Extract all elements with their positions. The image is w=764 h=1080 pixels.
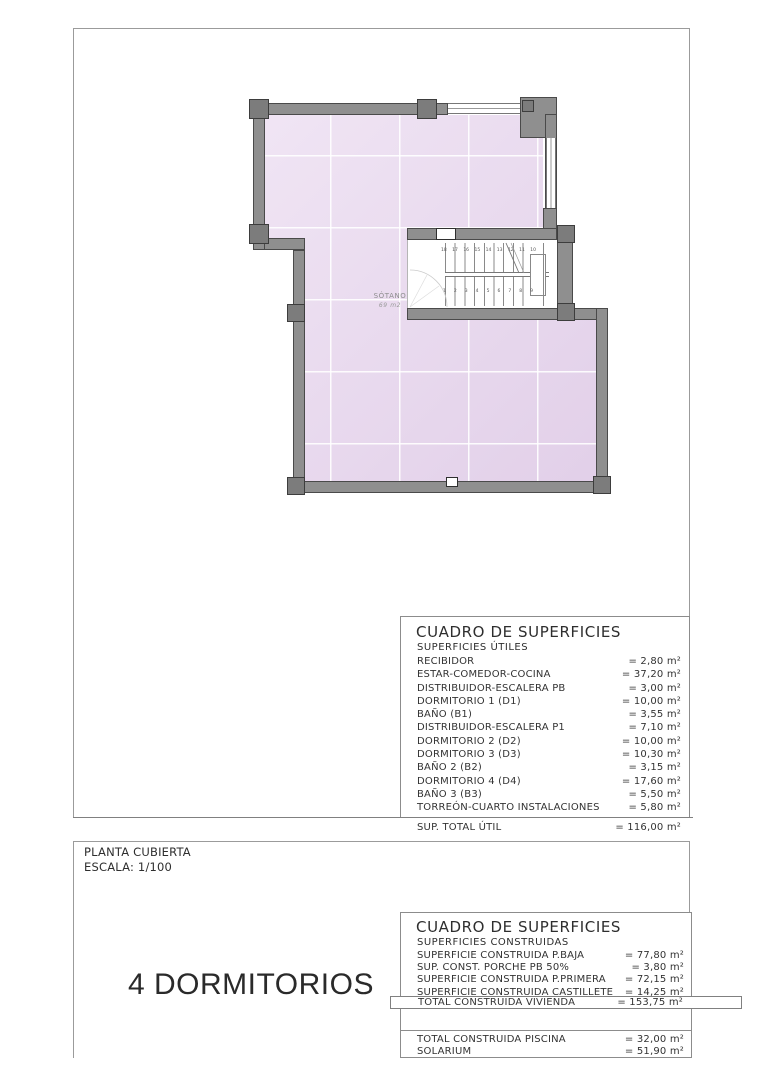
- row-label: SUP. CONST. PORCHE PB 50%: [417, 962, 569, 974]
- window: [546, 138, 556, 208]
- row-label: SOLARIUM: [417, 1046, 471, 1058]
- floor-plan: 18 17 16 15 14 13 12 11 10 1 2 3 4 5 6 7…: [0, 0, 764, 560]
- total-row: TOTAL CONSTRUIDA VIVIENDA = 153,75 m²: [391, 997, 741, 1008]
- row-label: ESTAR-COMEDOR-COCINA: [417, 668, 551, 681]
- row-label: BAÑO (B1): [417, 708, 472, 721]
- column: [249, 224, 269, 244]
- total-row: SUP. TOTAL ÚTIL = 116,00 m²: [73, 818, 693, 836]
- row-label: DORMITORIO 1 (D1): [417, 695, 521, 708]
- column: [557, 225, 575, 243]
- room-label: SÓTANO 69 m2: [355, 292, 425, 310]
- row-value: = 51,90 m²: [625, 1046, 684, 1058]
- row-value: = 3,00 m²: [628, 682, 681, 695]
- table-row: BAÑO (B1)= 3,55 m²: [417, 708, 681, 721]
- total-value: = 116,00 m²: [615, 822, 681, 833]
- table-row: TORREÓN-CUARTO INSTALACIONES= 5,80 m²: [417, 801, 681, 814]
- table-row: TOTAL CONSTRUIDA PISCINA= 32,00 m²: [417, 1034, 684, 1046]
- room-name: SÓTANO: [355, 292, 425, 301]
- row-label: DISTRIBUIDOR-ESCALERA PB: [417, 682, 566, 695]
- total-value: = 153,75 m²: [617, 997, 683, 1008]
- plan-name: PLANTA CUBIERTA: [84, 845, 191, 860]
- row-value: = 17,60 m²: [622, 775, 681, 788]
- table-row: BAÑO 3 (B3)= 5,50 m²: [417, 788, 681, 801]
- table-row: ESTAR-COMEDOR-COCINA= 37,20 m²: [417, 668, 681, 681]
- door-marker: [446, 477, 458, 487]
- wall-segment: [407, 308, 608, 320]
- table-title: CUADRO DE SUPERFICIES: [416, 919, 621, 936]
- row-label: SUPERFICIE CONSTRUIDA P.BAJA: [417, 950, 584, 962]
- row-value: = 32,00 m²: [625, 1034, 684, 1046]
- table-rows: SUPERFICIE CONSTRUIDA P.BAJA= 77,80 m² S…: [417, 950, 684, 999]
- row-value: = 2,80 m²: [628, 655, 681, 668]
- table-row: DISTRIBUIDOR-ESCALERA PB= 3,00 m²: [417, 682, 681, 695]
- table-row: DORMITORIO 2 (D2)= 10,00 m²: [417, 735, 681, 748]
- row-value: = 10,30 m²: [622, 748, 681, 761]
- table-divider: [400, 1030, 692, 1031]
- wall-segment: [407, 228, 557, 240]
- row-value: = 72,15 m²: [625, 974, 684, 986]
- column: [417, 99, 437, 119]
- row-label: DORMITORIO 3 (D3): [417, 748, 521, 761]
- table-row: SUP. CONST. PORCHE PB 50%= 3,80 m²: [417, 962, 684, 974]
- row-label: BAÑO 3 (B3): [417, 788, 482, 801]
- plan-scale: ESCALA: 1/100: [84, 860, 191, 875]
- row-value: = 10,00 m²: [622, 735, 681, 748]
- table-row: DORMITORIO 1 (D1)= 10,00 m²: [417, 695, 681, 708]
- row-label: DORMITORIO 2 (D2): [417, 735, 521, 748]
- total-vivienda-band: TOTAL CONSTRUIDA VIVIENDA = 153,75 m²: [390, 996, 742, 1009]
- wall-segment: [293, 250, 305, 493]
- row-value: = 3,80 m²: [631, 962, 684, 974]
- stair-detail-lines: [407, 240, 557, 308]
- table-row: DORMITORIO 3 (D3)= 10,30 m²: [417, 748, 681, 761]
- row-value: = 37,20 m²: [622, 668, 681, 681]
- row-value: = 5,50 m²: [628, 788, 681, 801]
- titleblock: PLANTA CUBIERTA ESCALA: 1/100: [84, 845, 191, 874]
- row-value: = 5,80 m²: [628, 801, 681, 814]
- row-value: = 7,10 m²: [628, 721, 681, 734]
- table-rows: TOTAL CONSTRUIDA PISCINA= 32,00 m² SOLAR…: [417, 1034, 684, 1058]
- row-label: RECIBIDOR: [417, 655, 474, 668]
- table-row: BAÑO 2 (B2)= 3,15 m²: [417, 761, 681, 774]
- row-label: TOTAL CONSTRUIDA PISCINA: [417, 1034, 566, 1046]
- column: [287, 304, 305, 322]
- row-value: = 3,15 m²: [628, 761, 681, 774]
- table-subtitle: SUPERFICIES ÚTILES: [417, 641, 528, 654]
- column: [593, 476, 611, 494]
- window: [448, 103, 520, 114]
- row-label: DISTRIBUIDOR-ESCALERA P1: [417, 721, 565, 734]
- table-row: SUPERFICIE CONSTRUIDA P.BAJA= 77,80 m²: [417, 950, 684, 962]
- table-row: RECIBIDOR= 2,80 m²: [417, 655, 681, 668]
- table-rows: RECIBIDOR= 2,80 m² ESTAR-COMEDOR-COCINA=…: [417, 655, 681, 815]
- total-util-band: SUP. TOTAL ÚTIL = 116,00 m²: [73, 817, 693, 836]
- table-row: SUPERFICIE CONSTRUIDA P.PRIMERA= 72,15 m…: [417, 974, 684, 986]
- door-marker: [436, 228, 456, 240]
- total-label: TOTAL CONSTRUIDA VIVIENDA: [418, 997, 575, 1008]
- table-row: DISTRIBUIDOR-ESCALERA P1= 7,10 m²: [417, 721, 681, 734]
- column: [249, 99, 269, 119]
- room-area: 69 m2: [355, 301, 425, 310]
- table-subtitle: SUPERFICIES CONSTRUIDAS: [417, 936, 569, 949]
- row-value: = 77,80 m²: [625, 950, 684, 962]
- row-value: = 3,55 m²: [628, 708, 681, 721]
- wall-segment: [596, 308, 608, 493]
- row-value: = 10,00 m²: [622, 695, 681, 708]
- row-label: SUPERFICIE CONSTRUIDA P.PRIMERA: [417, 974, 606, 986]
- row-label: TORREÓN-CUARTO INSTALACIONES: [417, 801, 600, 814]
- column: [287, 477, 305, 495]
- total-label: SUP. TOTAL ÚTIL: [417, 822, 501, 833]
- column: [557, 303, 575, 321]
- table-row: SOLARIUM= 51,90 m²: [417, 1046, 684, 1058]
- table-row: DORMITORIO 4 (D4)= 17,60 m²: [417, 775, 681, 788]
- column: [522, 100, 534, 112]
- table-title: CUADRO DE SUPERFICIES: [416, 624, 621, 641]
- row-label: DORMITORIO 4 (D4): [417, 775, 521, 788]
- row-label: BAÑO 2 (B2): [417, 761, 482, 774]
- bedrooms-title: 4 DORMITORIOS: [128, 968, 374, 1002]
- drawing-sheet: 18 17 16 15 14 13 12 11 10 1 2 3 4 5 6 7…: [0, 0, 764, 1080]
